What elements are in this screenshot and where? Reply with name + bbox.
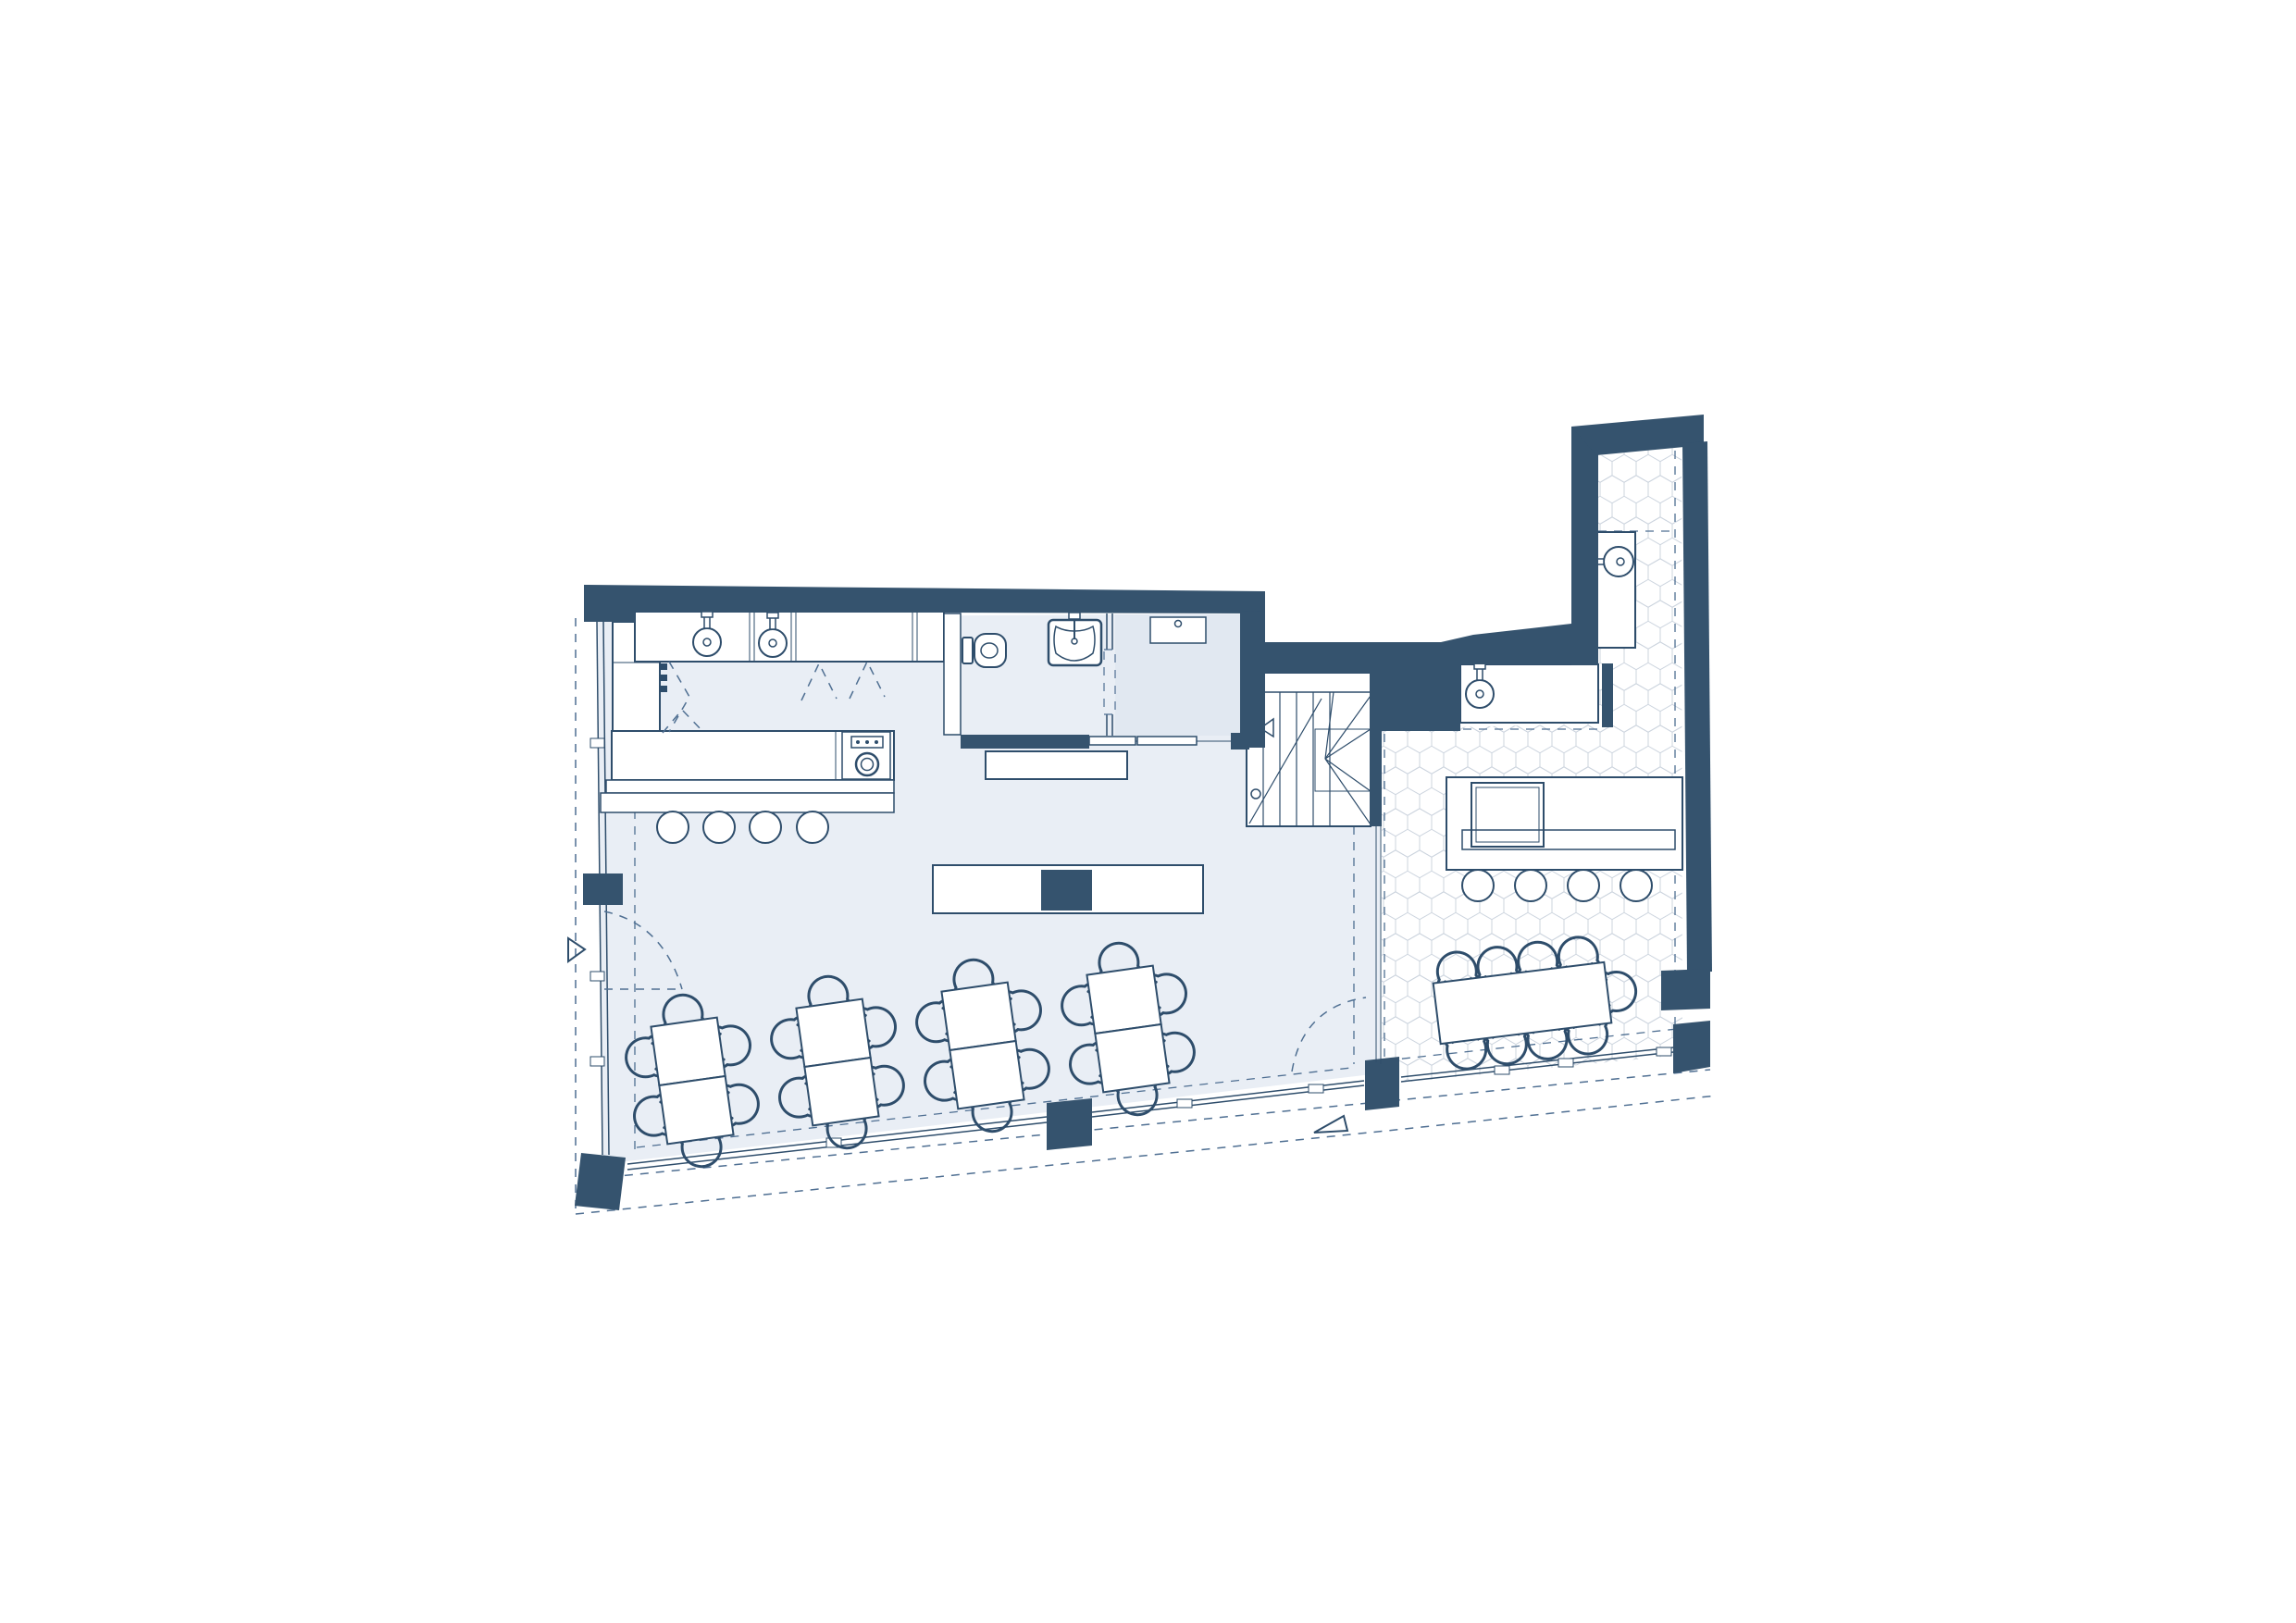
sliding-door-panel [1137,737,1197,745]
floor-plan-page [0,0,2296,1623]
coffee-bar-counter [1446,777,1682,870]
knob-icon [856,740,860,744]
tallroom-sink-icon [1604,547,1633,576]
kitchen-top-counter [635,612,944,662]
kitchen-wc-partition [944,613,961,735]
table-top [796,999,870,1067]
table-top [1086,966,1160,1034]
bar-stool [750,811,781,843]
hinge-mark [661,686,667,692]
table-top [659,1076,733,1144]
kitchen-sink-icon [759,629,787,657]
sliding-door-panel [1089,737,1136,745]
prep-sink-icon [1466,680,1494,708]
island-bar-overhang [601,793,894,812]
mullion [1495,1066,1509,1074]
pier-hex-top [1602,663,1613,727]
bar-stool [1620,870,1652,901]
wall-wc-stub [1231,733,1249,750]
wall-right-step [1661,969,1710,1010]
table-top [1095,1024,1169,1092]
level-marker-triangle [1314,1116,1347,1133]
stair-enclosure [1247,673,1371,826]
mullion [590,972,604,981]
island-bar-ledge [606,780,894,793]
mullion [1309,1084,1323,1093]
bar-stool [1568,870,1599,901]
bar-stool [1515,870,1546,901]
knob-icon [875,740,878,744]
pier-entrance [583,873,623,905]
bar-stool [657,811,689,843]
wall-wc-right [1240,611,1265,748]
table-top [651,1018,725,1085]
wall-right-lower [1673,1021,1710,1073]
mullion [1657,1047,1671,1056]
washbasin-faucet-handle [1069,613,1080,619]
mullion [1558,1059,1573,1067]
pier-bottom-left [575,1153,626,1210]
mullion [590,738,604,748]
hinge-mark [661,663,667,670]
wall-right-upper [1682,441,1712,973]
pier-bottom-mid [1047,1098,1092,1150]
pier-bottom-right [1365,1057,1399,1110]
entry-marker-triangle [568,938,585,961]
mullion [590,1057,604,1066]
center-column [1041,870,1092,911]
kitchen-sink-icon [693,628,721,656]
table-top [804,1058,878,1125]
mullion [1177,1099,1192,1108]
toilet-bowl-icon [974,634,1006,667]
knob-icon [865,740,869,744]
floor-plan-canvas [0,0,2296,1623]
table-top [949,1041,1024,1109]
wall-wc-bottom [961,735,1089,749]
bar-stool [1462,870,1494,901]
bar-stool [797,811,828,843]
console-table [986,751,1127,779]
bar-stool [703,811,735,843]
wall-tallroom-left [1571,427,1598,665]
table-top [941,983,1015,1050]
toilet-tank-icon [962,638,973,663]
hinge-mark [661,675,667,681]
